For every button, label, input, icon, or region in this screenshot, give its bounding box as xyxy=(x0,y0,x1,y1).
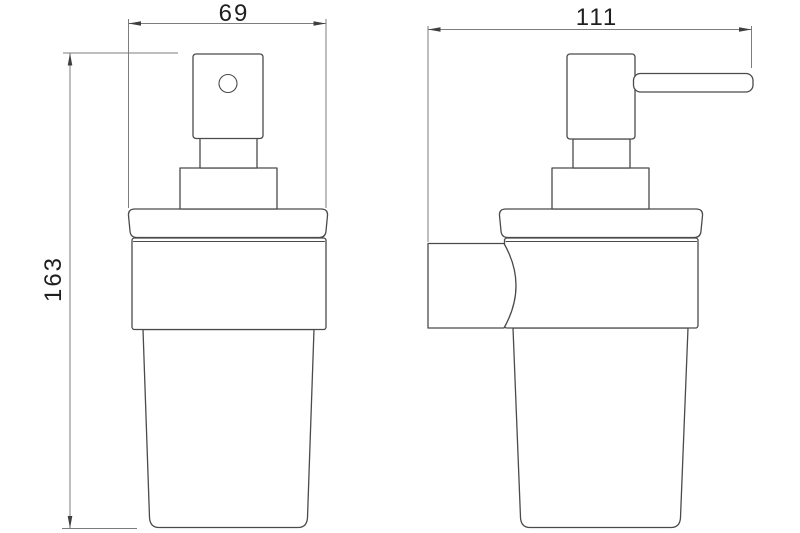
side-pump-base xyxy=(552,168,649,209)
side-width-arrow-right xyxy=(739,27,752,32)
side-cup-body xyxy=(513,328,688,528)
soap-dispenser-technical-drawing: 69 111 163 xyxy=(0,0,800,533)
side-holder-ring xyxy=(505,238,699,328)
side-wall-bracket xyxy=(428,244,516,329)
side-collar-plate xyxy=(499,209,702,238)
front-collar-plate xyxy=(128,209,327,238)
height-arrow-bottom xyxy=(68,516,73,529)
front-pump-base xyxy=(180,168,277,209)
side-width-label: 111 xyxy=(576,4,618,31)
front-pump-head xyxy=(193,54,263,139)
front-cup-body xyxy=(143,330,314,528)
drawing-canvas: 69 111 163 xyxy=(0,0,800,533)
front-holder-ring xyxy=(132,238,326,330)
side-width-arrow-left xyxy=(428,27,441,32)
front-width-arrow-right xyxy=(314,21,327,26)
side-pump-stem xyxy=(573,139,630,168)
front-width-label: 69 xyxy=(219,0,250,27)
height-label: 163 xyxy=(40,256,67,302)
front-view xyxy=(128,54,327,528)
side-spout xyxy=(634,74,754,93)
front-width-arrow-left xyxy=(129,21,142,26)
side-view xyxy=(428,54,753,528)
side-pump-head xyxy=(567,54,635,139)
height-arrow-top xyxy=(68,53,73,66)
front-pump-stem xyxy=(200,138,257,168)
